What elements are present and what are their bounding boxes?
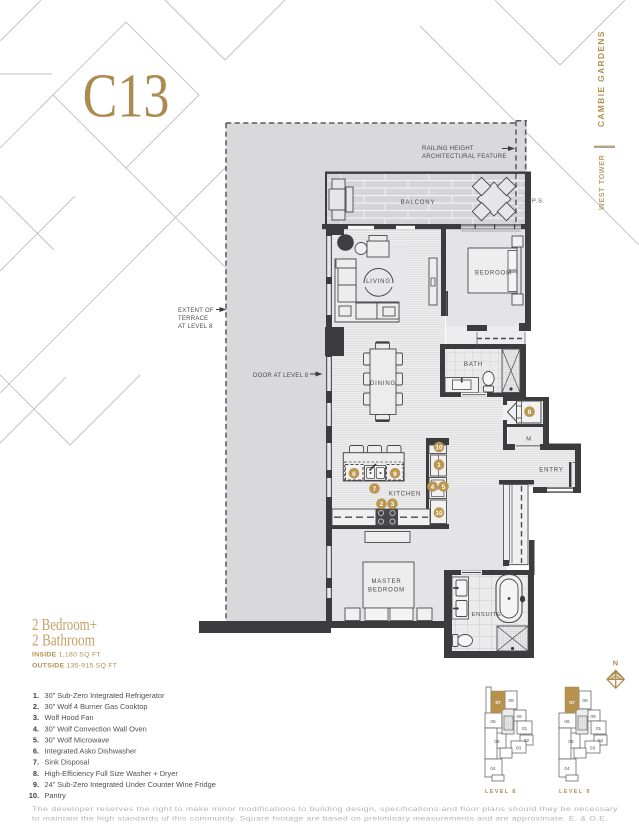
- svg-text:BATH: BATH: [464, 362, 483, 368]
- svg-text:02: 02: [524, 738, 530, 744]
- svg-text:10.: 10.: [29, 791, 39, 800]
- svg-text:09: 09: [590, 714, 596, 720]
- svg-text:7.: 7.: [33, 758, 39, 767]
- svg-text:30” Wolf Convection Wall Oven: 30” Wolf Convection Wall Oven: [45, 725, 147, 734]
- svg-text:OUTSIDE 135-915 SQ FT: OUTSIDE 135-915 SQ FT: [32, 663, 117, 670]
- svg-text:INSIDE 1,160 SQ FT: INSIDE 1,160 SQ FT: [32, 652, 101, 659]
- svg-text:04: 04: [564, 766, 570, 772]
- svg-text:RAILING HEIGHT: RAILING HEIGHT: [422, 146, 474, 152]
- svg-text:9.: 9.: [33, 780, 39, 789]
- svg-text:5.: 5.: [33, 736, 39, 745]
- svg-text:Integrated Asko Dishwasher: Integrated Asko Dishwasher: [45, 747, 138, 756]
- svg-text:LEVEL 9: LEVEL 9: [559, 789, 591, 795]
- svg-text:09: 09: [516, 714, 522, 720]
- svg-text:BEDROOM: BEDROOM: [368, 588, 405, 594]
- svg-text:9: 9: [393, 471, 397, 478]
- svg-text:CAMBIE GARDENS: CAMBIE GARDENS: [596, 30, 606, 127]
- svg-text:08: 08: [582, 698, 588, 704]
- svg-text:2 Bathroom: 2 Bathroom: [32, 631, 95, 650]
- svg-text:DOOR AT LEVEL 8: DOOR AT LEVEL 8: [253, 373, 309, 379]
- svg-text:N: N: [613, 659, 618, 668]
- svg-text:Pantry: Pantry: [45, 791, 67, 800]
- svg-text:LIVING: LIVING: [366, 279, 391, 285]
- svg-text:High-Efficiency Full Size Wash: High-Efficiency Full Size Washer + Dryer: [45, 769, 179, 778]
- svg-text:EXTENT OF: EXTENT OF: [178, 308, 214, 314]
- svg-text:The developer reserves the rig: The developer reserves the right to make…: [32, 806, 618, 813]
- svg-text:TERRACE: TERRACE: [178, 316, 208, 322]
- svg-text:C13: C13: [83, 62, 170, 130]
- svg-text:WEST TOWER: WEST TOWER: [597, 154, 606, 210]
- svg-text:30” Sub-Zero Integrated Refrig: 30” Sub-Zero Integrated Refrigerator: [45, 691, 165, 700]
- svg-text:BEDROOM: BEDROOM: [475, 271, 512, 277]
- svg-text:6.: 6.: [33, 747, 39, 756]
- svg-text:1: 1: [437, 462, 441, 469]
- svg-text:30” Wolf 4 Burner Gas Cooktop: 30” Wolf 4 Burner Gas Cooktop: [45, 702, 148, 711]
- svg-text:03: 03: [590, 746, 596, 752]
- svg-text:24” Sub-Zero Integrated Under: 24” Sub-Zero Integrated Under Counter Wi…: [45, 780, 216, 789]
- svg-text:04: 04: [490, 766, 496, 772]
- svg-text:to maintain the high standards: to maintain the high standards of this c…: [32, 816, 608, 823]
- svg-text:4: 4: [431, 484, 435, 491]
- svg-text:2: 2: [380, 501, 384, 508]
- svg-text:05: 05: [494, 739, 500, 745]
- svg-text:8: 8: [528, 409, 532, 416]
- svg-text:DINING: DINING: [370, 381, 396, 387]
- svg-text:06: 06: [490, 719, 496, 725]
- svg-text:07: 07: [495, 700, 501, 706]
- svg-text:03: 03: [516, 746, 522, 752]
- svg-text:6: 6: [352, 471, 356, 478]
- svg-text:2.: 2.: [33, 702, 39, 711]
- svg-text:3.: 3.: [33, 713, 39, 722]
- svg-text:MASTER: MASTER: [371, 579, 401, 585]
- svg-text:06: 06: [564, 719, 570, 725]
- svg-text:ENSUITE: ENSUITE: [471, 612, 501, 618]
- svg-text:4.: 4.: [33, 725, 39, 734]
- svg-text:02: 02: [598, 738, 604, 744]
- svg-text:LEVEL 8: LEVEL 8: [485, 789, 517, 795]
- svg-text:KITCHEN: KITCHEN: [389, 492, 421, 498]
- svg-text:8.: 8.: [33, 769, 39, 778]
- svg-text:Sink Disposal: Sink Disposal: [45, 758, 90, 767]
- svg-text:7: 7: [373, 486, 377, 493]
- svg-text:AT LEVEL 8: AT LEVEL 8: [178, 324, 213, 330]
- svg-text:05: 05: [568, 739, 574, 745]
- svg-text:07: 07: [569, 700, 575, 706]
- svg-text:M: M: [526, 437, 532, 443]
- svg-text:01: 01: [522, 726, 528, 732]
- svg-text:3: 3: [391, 501, 395, 508]
- svg-text:08: 08: [508, 698, 514, 704]
- svg-text:Wolf Hood Fan: Wolf Hood Fan: [45, 713, 94, 722]
- svg-text:1.: 1.: [33, 691, 39, 700]
- svg-text:30” Wolf Microwave: 30” Wolf Microwave: [45, 736, 110, 745]
- svg-text:10: 10: [435, 445, 443, 452]
- svg-text:ARCHITECTURAL FEATURE: ARCHITECTURAL FEATURE: [422, 154, 507, 160]
- svg-text:BALCONY: BALCONY: [401, 200, 436, 206]
- svg-text:P.S.: P.S.: [532, 199, 545, 205]
- svg-text:ENTRY: ENTRY: [539, 468, 563, 474]
- svg-text:5: 5: [442, 484, 446, 491]
- svg-text:10: 10: [435, 510, 443, 517]
- svg-text:01: 01: [596, 726, 602, 732]
